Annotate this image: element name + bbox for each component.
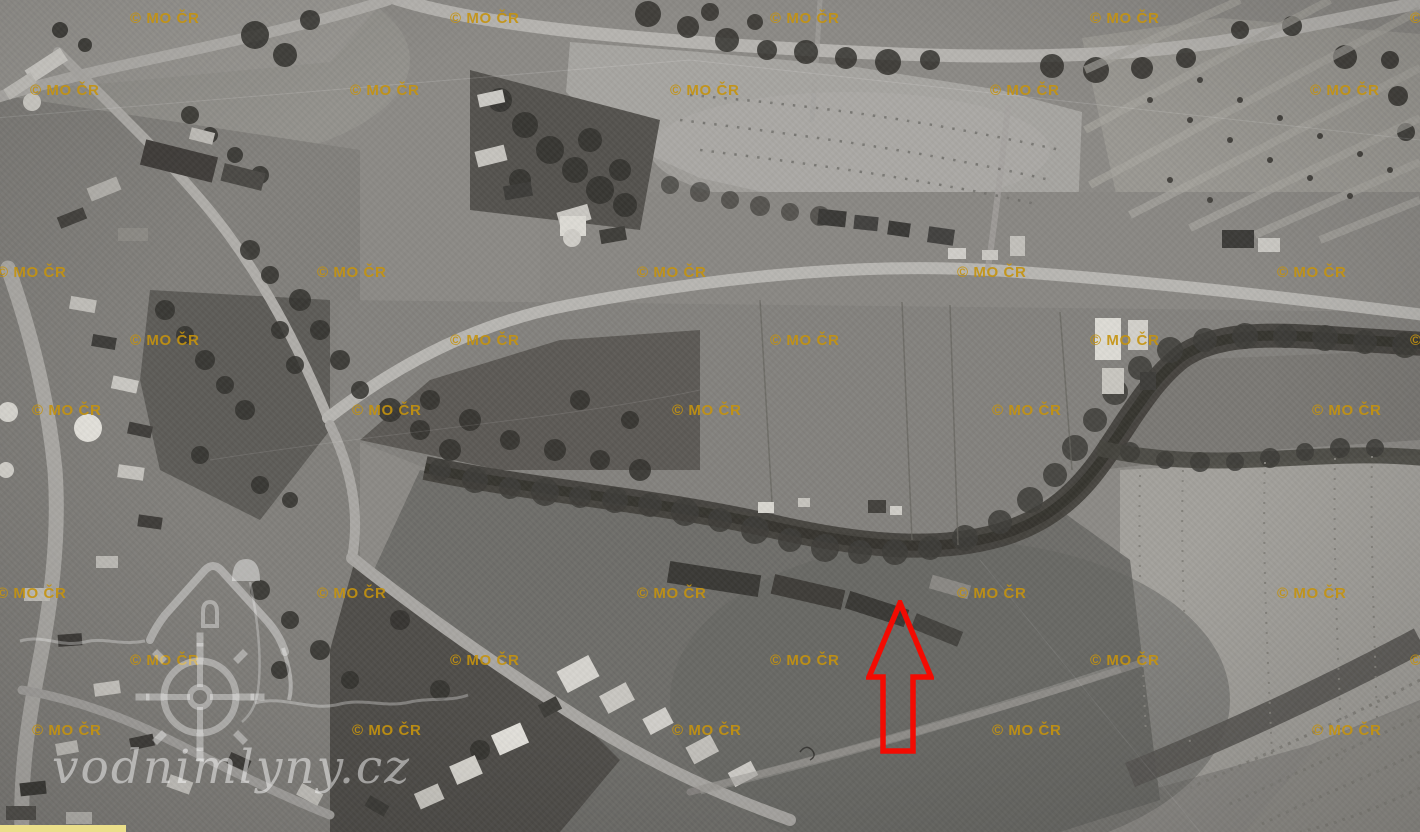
map-viewport[interactable]: © MO ČR© MO ČR© MO ČR© MO ČR© MO ČR© MO … bbox=[0, 0, 1420, 832]
red-arrow-icon bbox=[866, 600, 934, 756]
bottom-left-partial-element bbox=[0, 825, 126, 832]
aerial-photo[interactable] bbox=[0, 0, 1420, 832]
